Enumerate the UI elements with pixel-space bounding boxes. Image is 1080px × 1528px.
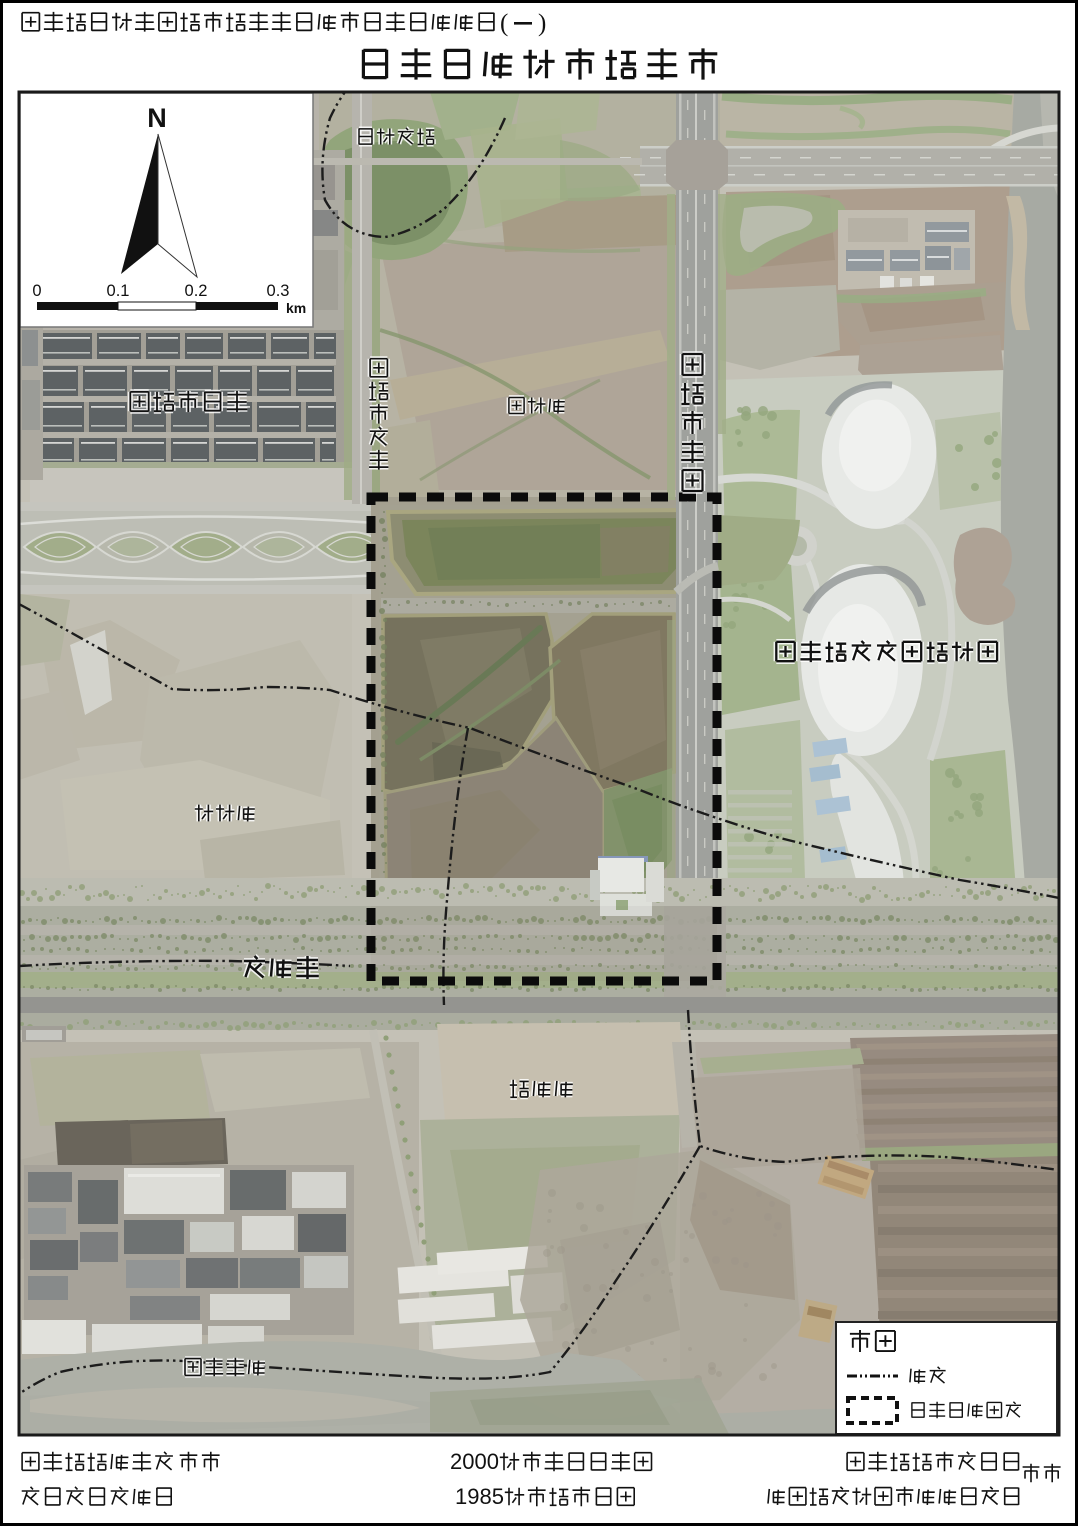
svg-text:): ) xyxy=(538,10,546,37)
svg-text:0.1: 0.1 xyxy=(107,282,130,300)
svg-text:0: 0 xyxy=(32,282,41,300)
svg-text:(: ( xyxy=(500,10,508,37)
svg-text:0.3: 0.3 xyxy=(267,282,290,300)
svg-text:0.2: 0.2 xyxy=(185,282,208,300)
svg-text:km: km xyxy=(286,300,306,316)
svg-text:1985: 1985 xyxy=(455,1484,504,1509)
svg-text:N: N xyxy=(147,103,167,133)
svg-text:2000: 2000 xyxy=(450,1449,499,1474)
